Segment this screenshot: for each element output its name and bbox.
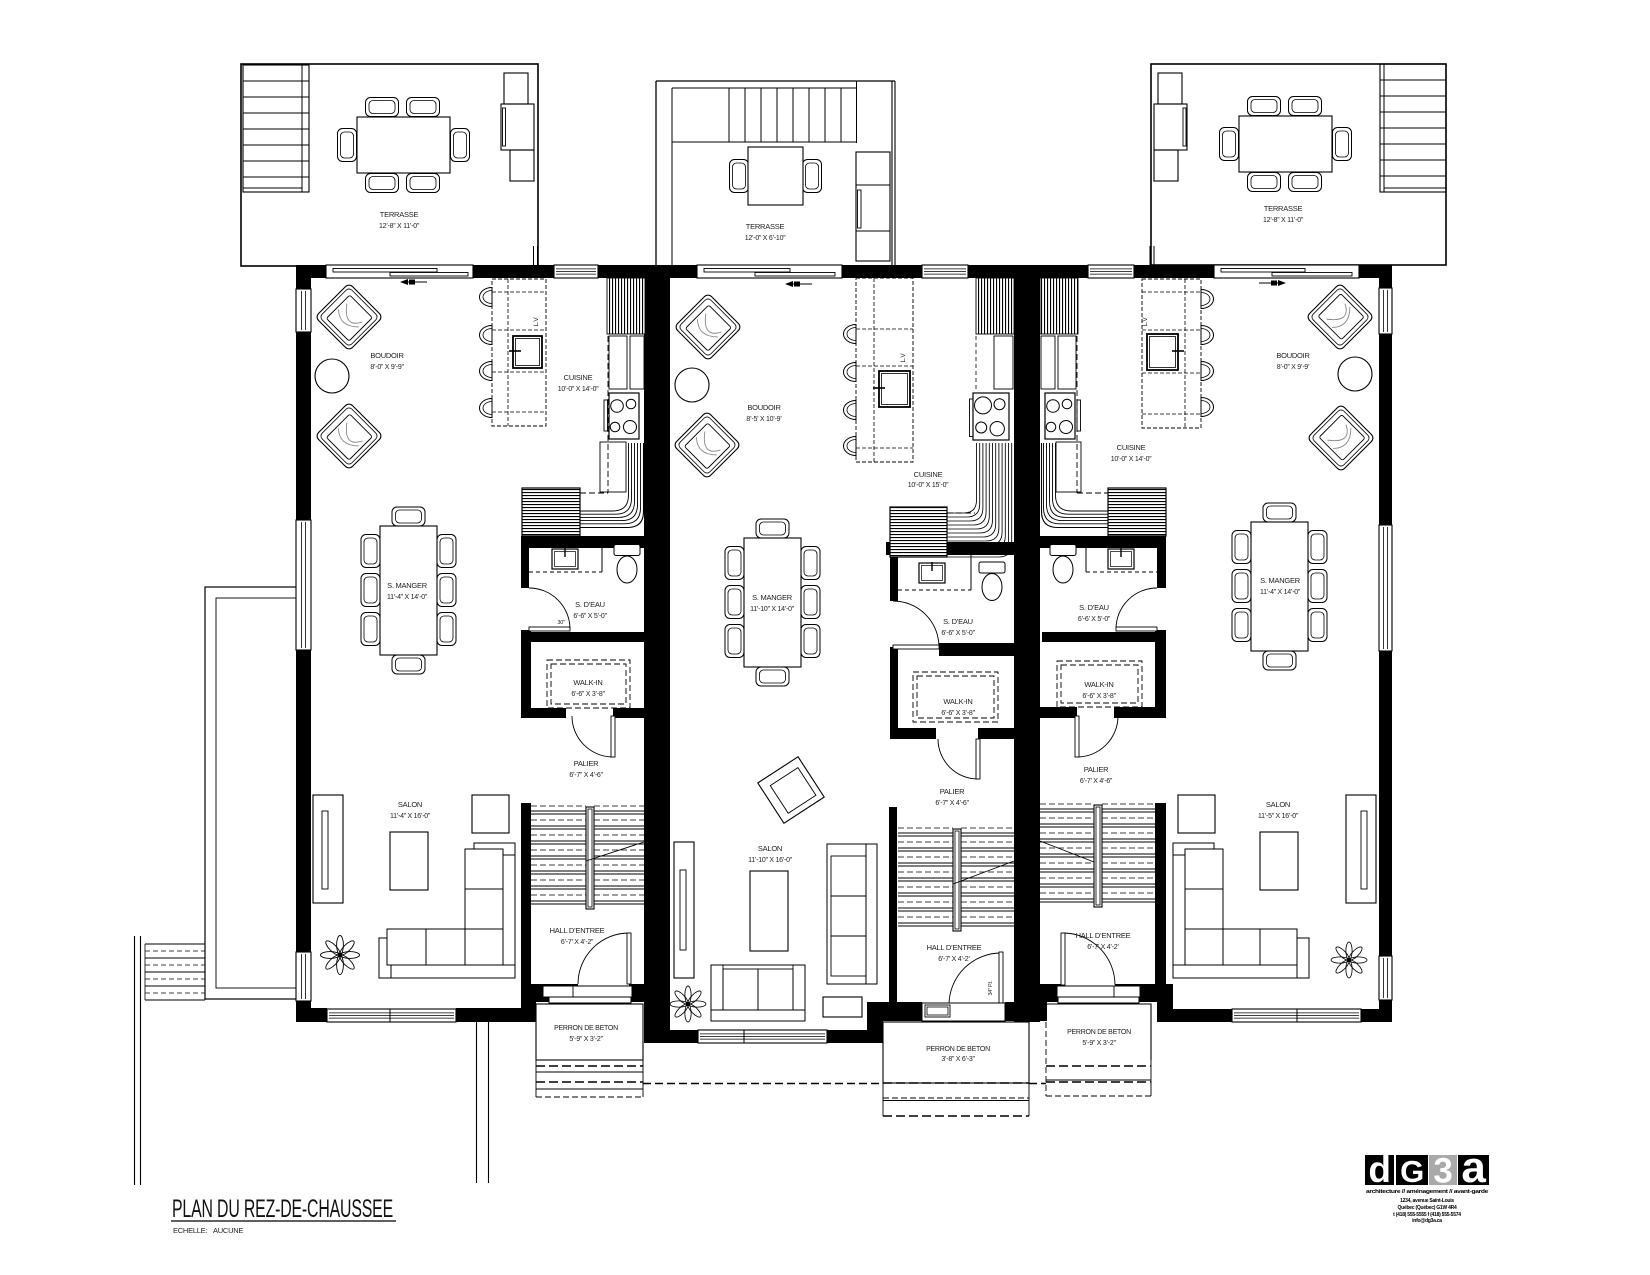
svg-text:CUISINE: CUISINE: [914, 470, 943, 479]
svg-text:S. D’EAU: S. D’EAU: [943, 617, 973, 626]
svg-text:L.V: L.V: [900, 353, 907, 363]
svg-text:a: a: [1461, 1143, 1486, 1192]
svg-text:12’-0” X 6’-10”: 12’-0” X 6’-10”: [745, 235, 787, 242]
svg-text:info@dg3a.ca: info@dg3a.ca: [1412, 1218, 1442, 1224]
svg-text:S. MANGER: S. MANGER: [387, 581, 428, 590]
svg-text:S. MANGER: S. MANGER: [1260, 576, 1301, 585]
svg-text:PERRON DE BETON: PERRON DE BETON: [926, 1046, 990, 1053]
svg-text:5’-9” X 3’-2”: 5’-9” X 3’-2”: [1082, 1040, 1116, 1047]
svg-text:6’-7” X 4’-6”: 6’-7” X 4’-6”: [935, 800, 969, 807]
svg-text:CUISINE: CUISINE: [564, 373, 593, 382]
svg-text:8’-5’ X 10’-9’: 8’-5’ X 10’-9’: [746, 416, 782, 423]
svg-text:34’’ P.I.: 34’’ P.I.: [988, 980, 994, 996]
svg-text:3’-8” X 6’-3”: 3’-8” X 6’-3”: [941, 1056, 975, 1063]
svg-text:11’-4” X 14’-0”: 11’-4” X 14’-0”: [1260, 589, 1301, 596]
svg-text:BOUDOIR: BOUDOIR: [1276, 351, 1310, 360]
svg-text:3: 3: [1433, 1152, 1452, 1191]
svg-text:6’-7’ X 4’-6”: 6’-7’ X 4’-6”: [1080, 778, 1113, 785]
svg-text:30”: 30”: [557, 620, 565, 626]
svg-text:HALL D’ENTREE: HALL D’ENTREE: [550, 926, 605, 935]
svg-text:12’-8” X 11’-0”: 12’-8” X 11’-0”: [379, 223, 420, 230]
svg-text:S. D’EAU: S. D’EAU: [575, 600, 605, 609]
svg-text:11’-10” X 14’-0”: 11’-10” X 14’-0”: [750, 606, 795, 613]
svg-text:TERRASSE: TERRASSE: [746, 222, 785, 231]
svg-text:10’-0” X 14’-0”: 10’-0” X 14’-0”: [1111, 456, 1153, 463]
svg-text:Québec (Québec) G1W 4R4: Québec (Québec) G1W 4R4: [1398, 1205, 1457, 1211]
svg-text:6’-7’ X 4’-2’: 6’-7’ X 4’-2’: [938, 956, 970, 963]
svg-text:TERRASSE: TERRASSE: [380, 210, 419, 219]
svg-text:HALL D’ENTREE: HALL D’ENTREE: [927, 943, 982, 952]
svg-text:SALON: SALON: [1266, 800, 1290, 809]
svg-text:11’-5” X 16’-0”: 11’-5” X 16’-0”: [1258, 813, 1299, 820]
svg-text:SALON: SALON: [758, 844, 782, 853]
svg-text:SALON: SALON: [398, 800, 422, 809]
svg-text:L.V: L.V: [1142, 317, 1149, 327]
svg-text:d: d: [1368, 1149, 1390, 1190]
svg-text:TERRASSE: TERRASSE: [1264, 204, 1303, 213]
svg-text:6’-7’ X 4’-2”: 6’-7’ X 4’-2”: [561, 939, 594, 946]
svg-text:G: G: [1400, 1154, 1424, 1189]
svg-text:6’-6’ X 5’-0”: 6’-6’ X 5’-0”: [1078, 616, 1111, 623]
svg-text:11’-4” X 16’-0”: 11’-4” X 16’-0”: [390, 813, 431, 820]
svg-text:L.V: L.V: [533, 317, 540, 327]
svg-text:6’-7’ X 4’-2’: 6’-7’ X 4’-2’: [1087, 944, 1119, 951]
svg-text:6’-6” X 3’-8”: 6’-6” X 3’-8”: [941, 710, 975, 717]
svg-text:BOUDOIR: BOUDOIR: [747, 403, 781, 412]
svg-text:WALK-IN: WALK-IN: [573, 678, 602, 687]
svg-text:8’-0” X 9’-9’: 8’-0” X 9’-9’: [1277, 364, 1310, 371]
svg-text:BOUDOIR: BOUDOIR: [370, 351, 404, 360]
svg-text:HALL D’ENTREE: HALL D’ENTREE: [1076, 931, 1131, 940]
svg-text:CUISINE: CUISINE: [1117, 443, 1146, 452]
svg-text:AUCUNE: AUCUNE: [213, 1226, 243, 1235]
svg-text:1234, avenue Saint-Louis: 1234, avenue Saint-Louis: [1400, 1198, 1454, 1204]
svg-text:11’-10” X 16’-0”: 11’-10” X 16’-0”: [748, 857, 793, 864]
svg-text:6’-7” X 4’-6”: 6’-7” X 4’-6”: [569, 772, 603, 779]
svg-text:PERRON DE BETON: PERRON DE BETON: [1067, 1029, 1131, 1036]
svg-text:12’-8” X 11’-0”: 12’-8” X 11’-0”: [1263, 217, 1304, 224]
svg-text:WALK-IN: WALK-IN: [943, 697, 972, 706]
svg-text:S. D’EAU: S. D’EAU: [1079, 603, 1109, 612]
svg-text:PALIER: PALIER: [574, 759, 599, 768]
svg-text:10’-0” X 14’-0”: 10’-0” X 14’-0”: [558, 386, 600, 393]
svg-text:PLAN DU REZ-DE-CHAUSSEE: PLAN DU REZ-DE-CHAUSSEE: [172, 1195, 393, 1223]
svg-text:6’-6” X 3’-8”: 6’-6” X 3’-8”: [571, 691, 605, 698]
svg-text:6’-6” X 5’-0”: 6’-6” X 5’-0”: [941, 630, 975, 637]
svg-text:6’-6” X 5’-0”: 6’-6” X 5’-0”: [573, 613, 607, 620]
svg-text:11’-4” X 14’-0”: 11’-4” X 14’-0”: [387, 594, 428, 601]
svg-text:WALK-IN: WALK-IN: [1084, 680, 1113, 689]
svg-text:5’-9” X 3’-2”: 5’-9” X 3’-2”: [569, 1036, 603, 1043]
svg-text:6’-6” X 3’-8”: 6’-6” X 3’-8”: [1082, 693, 1116, 700]
svg-text:S. MANGER: S. MANGER: [752, 593, 793, 602]
svg-text:architecture // aménagement //: architecture // aménagement // avant-gar…: [1366, 1189, 1488, 1195]
svg-text:ECHELLE:: ECHELLE:: [173, 1226, 207, 1235]
svg-text:10’-0” X 15’-0”: 10’-0” X 15’-0”: [908, 482, 950, 489]
svg-text:PALIER: PALIER: [940, 787, 965, 796]
svg-text:PERRON DE BETON: PERRON DE BETON: [554, 1025, 618, 1032]
svg-text:PALIER: PALIER: [1084, 765, 1109, 774]
svg-text:8’-0” X 9’-9”: 8’-0” X 9’-9”: [370, 364, 404, 371]
